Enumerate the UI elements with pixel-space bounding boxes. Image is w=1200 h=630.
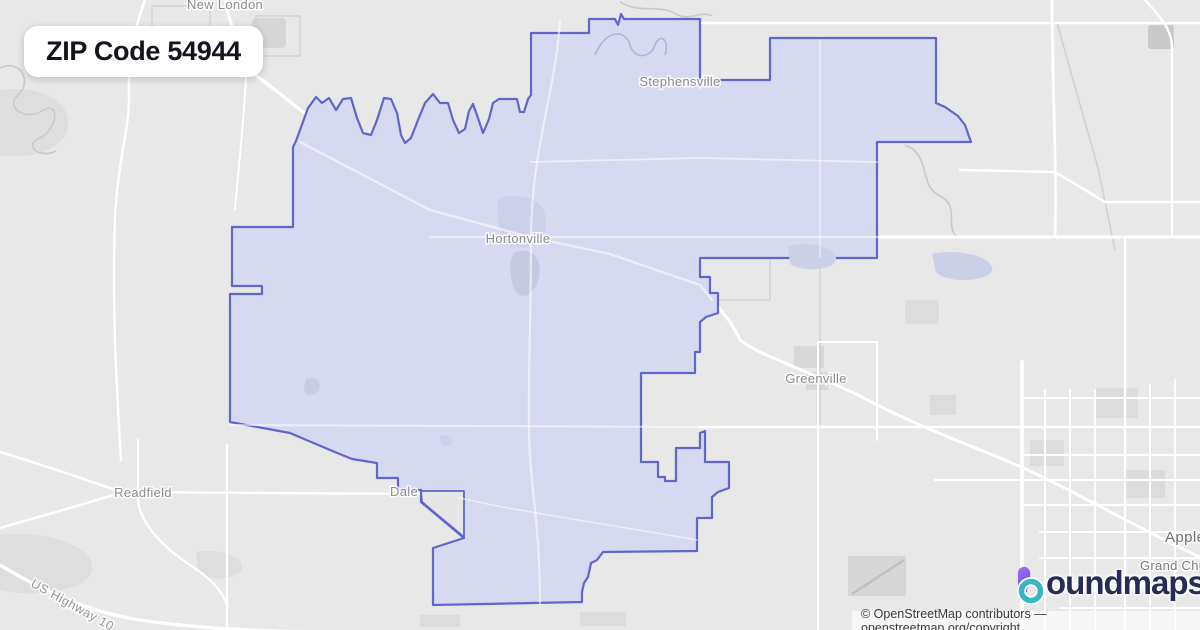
label-greenville: Greenville — [785, 371, 847, 386]
boundmaps-logo: oundmaps — [1014, 564, 1200, 604]
map-view: New London Stephensville Hortonville Gre… — [0, 0, 1200, 630]
attribution-text[interactable]: © OpenStreetMap contributors — openstree… — [861, 607, 1200, 630]
zip-title: ZIP Code 54944 — [46, 36, 241, 67]
label-dale: Dale — [390, 484, 418, 499]
attribution-bar[interactable]: © OpenStreetMap contributors — openstree… — [852, 611, 1200, 630]
boundmaps-b-icon — [1014, 564, 1046, 604]
zip-title-card: ZIP Code 54944 — [24, 26, 263, 77]
label-new-london: New London — [187, 0, 263, 12]
label-hortonville: Hortonville — [486, 231, 551, 246]
label-stephensville: Stephensville — [639, 74, 720, 89]
label-readfield: Readfield — [114, 485, 172, 500]
label-appleton: Appleton — [1165, 529, 1200, 546]
map-canvas[interactable]: New London Stephensville Hortonville Gre… — [0, 0, 1200, 630]
boundmaps-wordmark: oundmaps — [1046, 564, 1200, 602]
